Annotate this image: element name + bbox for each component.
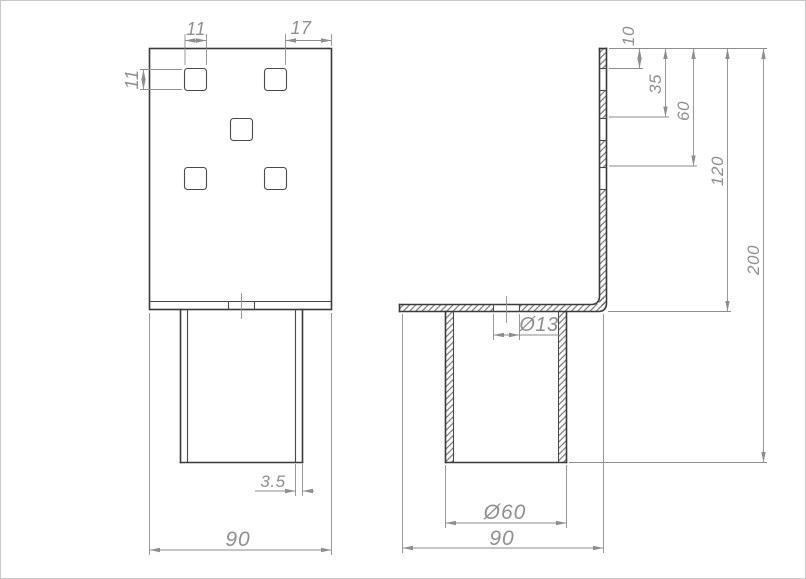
dim-text-dia13: Ø13 xyxy=(518,314,558,336)
dimension-offset-60: 60 xyxy=(674,49,694,167)
plate-hole-gap-edges xyxy=(600,69,607,190)
side-view: 10 35 60 120 200 Ø13 xyxy=(399,26,767,553)
dimension-offset-10: 10 xyxy=(619,26,640,68)
dimension-hole-height: 11 xyxy=(122,70,182,90)
dim-text-10: 10 xyxy=(619,26,638,46)
front-plate-holes xyxy=(185,69,287,190)
dim-text-17: 17 xyxy=(290,18,312,38)
dim-text-dia60: Ø60 xyxy=(483,501,527,524)
hole-top-right xyxy=(265,69,287,91)
dim-text-3-5: 3.5 xyxy=(260,472,285,491)
hole-mid-left xyxy=(185,168,207,190)
hole-center xyxy=(231,119,253,141)
dimension-wall-thickness: 3.5 xyxy=(255,464,314,496)
dimension-flange-hole: Ø13 xyxy=(494,314,560,340)
dimension-overall-200: 200 xyxy=(744,49,764,463)
side-profile-outline xyxy=(400,49,607,312)
dimension-offset-120: 120 xyxy=(708,49,728,312)
hole-mid-right xyxy=(265,168,287,190)
dimension-hole-offset-right: 17 xyxy=(286,18,332,65)
technical-drawing: 11 17 11 3.5 90 xyxy=(1,1,806,579)
dimension-offset-35: 35 xyxy=(646,49,666,118)
dim-text-90-left: 90 xyxy=(225,528,250,551)
dim-text-200: 200 xyxy=(744,245,763,276)
dim-text-60: 60 xyxy=(674,101,693,121)
front-plate-outline xyxy=(150,49,332,310)
dimension-hole-width: 11 xyxy=(185,19,207,65)
dim-text-90-right: 90 xyxy=(489,527,514,550)
dim-text-120: 120 xyxy=(708,156,727,186)
dimension-plate-width: 90 xyxy=(150,313,332,555)
front-tube xyxy=(181,310,303,463)
section-hatching xyxy=(399,48,607,463)
dimension-tube-diameter: Ø60 xyxy=(446,465,567,528)
dim-text-11-top: 11 xyxy=(186,19,206,39)
dim-text-11-left: 11 xyxy=(122,70,142,90)
front-view: 11 17 11 3.5 90 xyxy=(122,18,332,555)
dim-text-35: 35 xyxy=(646,74,665,94)
hole-top-left xyxy=(185,69,207,91)
drawing-canvas: 11 17 11 3.5 90 xyxy=(0,0,806,579)
